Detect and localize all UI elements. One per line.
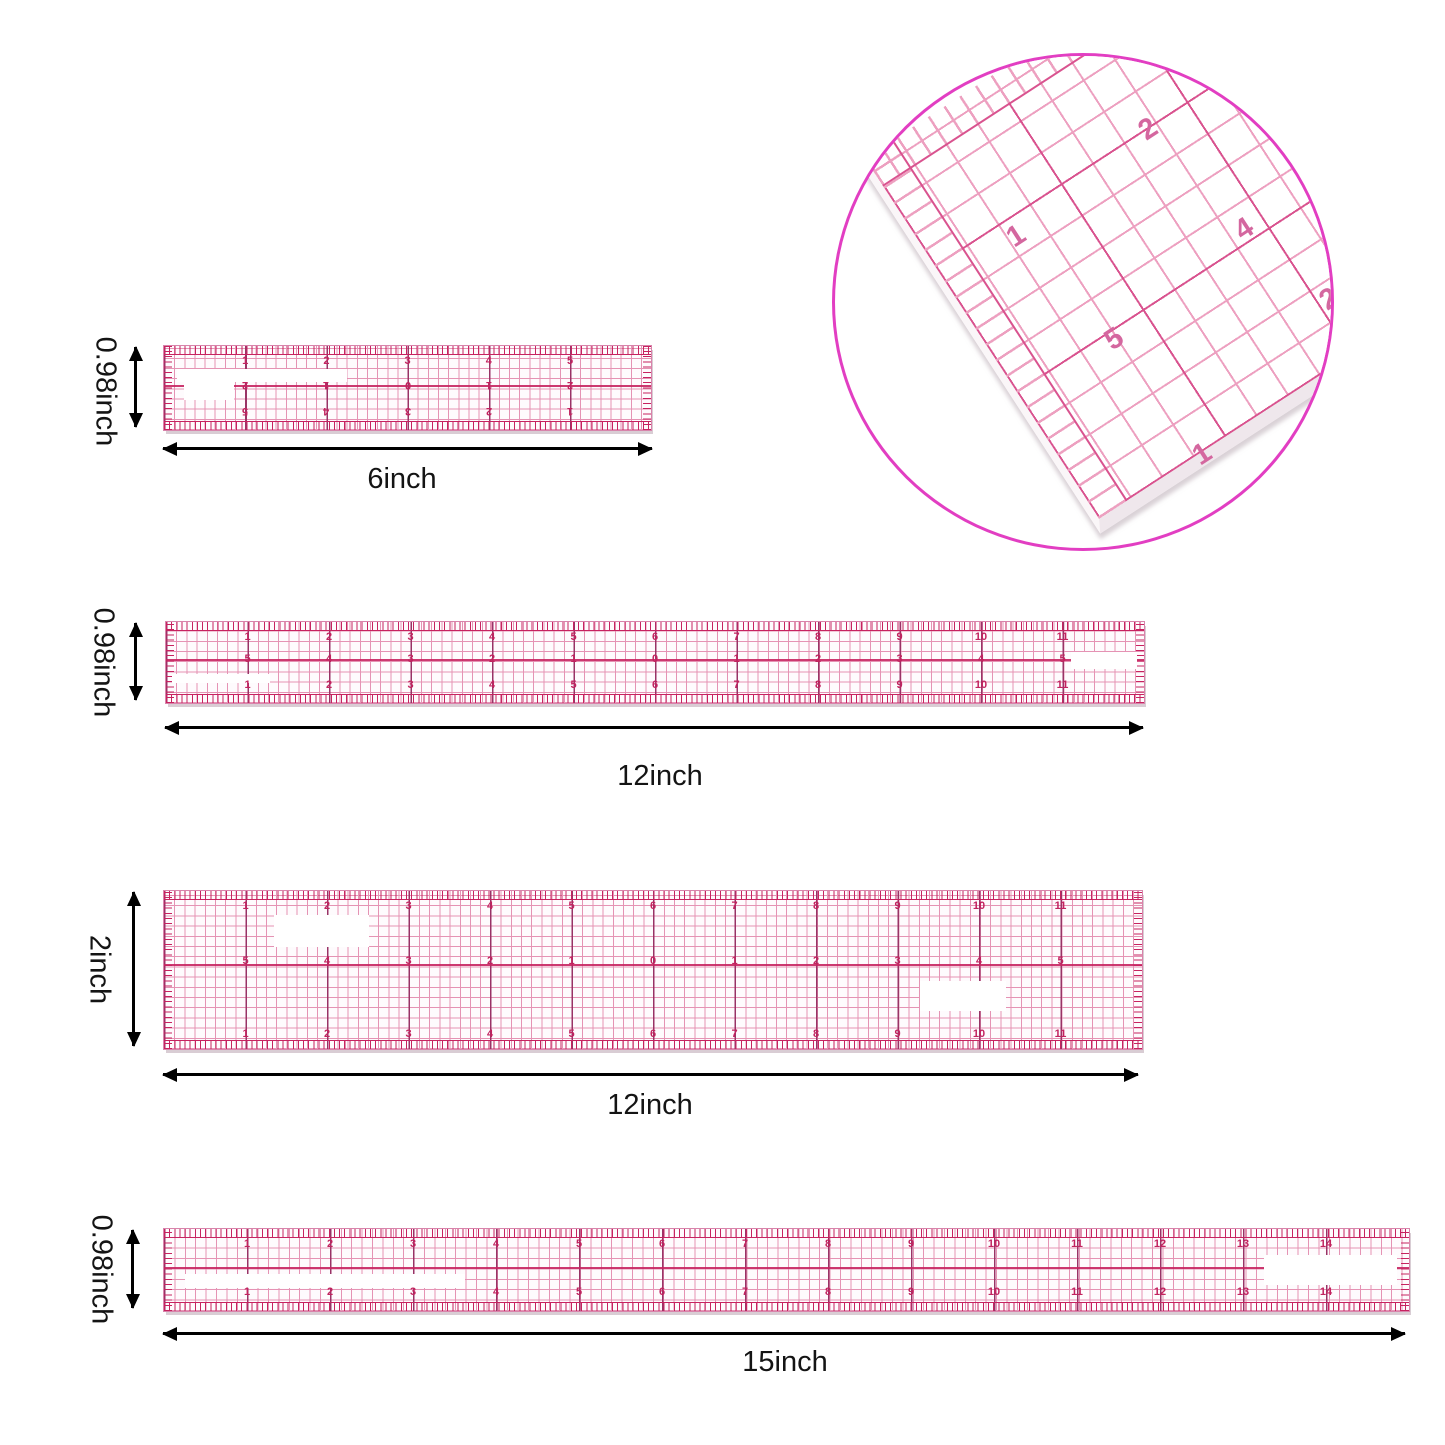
ruler-number: 5 [568, 900, 574, 912]
ruler-number: 14 [1320, 1238, 1332, 1250]
ruler-number: 3 [405, 900, 411, 912]
ruler-number: 10 [975, 679, 987, 691]
ruler-number: 8 [815, 631, 821, 643]
ruler-number: 1 [242, 900, 248, 912]
ruler-number: 8 [813, 900, 819, 912]
ruler-number: 9 [908, 1238, 914, 1250]
ruler-tick-strip-bottom [164, 1302, 1409, 1311]
ruler-number: 4 [487, 900, 493, 912]
ruler-number: 3 [407, 679, 413, 691]
ruler-number: 3 [405, 405, 411, 417]
width-label: 12inch [580, 760, 740, 793]
ruler-number: 11 [1055, 900, 1067, 912]
ruler-number: 11 [1057, 631, 1069, 643]
ruler-number: 1 [244, 679, 250, 691]
ruler-number: 4 [324, 955, 330, 967]
ruler-tick-strip-right [643, 346, 651, 430]
height-arrow [132, 892, 135, 1046]
ruler-number: 13 [1237, 1238, 1249, 1250]
ruler-15inch: 12345678910111213141234567891011121314 [163, 1228, 1410, 1312]
ruler-number: 5 [576, 1286, 582, 1298]
ruler-number: 7 [733, 631, 739, 643]
ruler-number: 0 [652, 653, 658, 665]
ruler-number: 3 [410, 1238, 416, 1250]
ruler-number: 10 [988, 1238, 1000, 1250]
ruler-number: 5 [244, 653, 250, 665]
ruler-tick-strip-right [1134, 891, 1142, 1049]
ruler-number: 2 [486, 405, 492, 417]
width-label: 6inch [322, 463, 482, 496]
ruler-tick-strip-top [166, 622, 1144, 631]
ruler-number: 0 [405, 379, 411, 391]
ruler-number: 5 [567, 355, 573, 367]
width-arrow [163, 1073, 1138, 1076]
ruler-number: 11 [1071, 1238, 1083, 1250]
ruler-number: 4 [487, 1028, 493, 1040]
ruler-tick-strip-bottom [164, 421, 651, 430]
ruler-number: 1 [567, 405, 573, 417]
ruler-number: 2 [327, 1286, 333, 1298]
ruler-number: 4 [489, 679, 495, 691]
width-arrow [163, 447, 652, 450]
ruler-number: 7 [742, 1238, 748, 1250]
ruler-tick-strip-bottom [164, 1040, 1142, 1049]
ruler-number: 1 [731, 955, 737, 967]
ruler-number: 8 [825, 1286, 831, 1298]
ruler-number: 2 [326, 679, 332, 691]
ruler-number: 1 [244, 1238, 250, 1250]
ruler-number: 4 [493, 1238, 499, 1250]
ruler-number: 9 [894, 900, 900, 912]
ruler-number: 4 [486, 355, 492, 367]
height-label: 2inch [83, 905, 116, 1035]
ruler-6inch: 123452101254321 [163, 345, 652, 431]
ruler-number: 9 [896, 679, 902, 691]
ruler-number: 5 [1057, 955, 1063, 967]
ruler-number: 11 [1071, 1286, 1083, 1298]
ruler-number: 7 [742, 1286, 748, 1298]
ruler-number: 4 [978, 653, 984, 665]
ruler-number: 4 [323, 405, 329, 417]
ruler-slot [185, 1274, 465, 1288]
height-arrow [131, 1230, 134, 1308]
ruler-number: 9 [894, 1028, 900, 1040]
ruler-number: 8 [813, 1028, 819, 1040]
ruler-slot [1264, 1255, 1397, 1285]
ruler-number: 7 [733, 679, 739, 691]
ruler-slot [920, 981, 1006, 1011]
height-arrow [134, 347, 137, 427]
ruler-number: 3 [405, 355, 411, 367]
ruler-number: 2 [242, 379, 248, 391]
ruler-number: 1 [733, 653, 739, 665]
ruler-slot [274, 915, 369, 947]
ruler-number: 1 [323, 379, 329, 391]
width-arrow [163, 1332, 1405, 1335]
ruler-midline [164, 1267, 1409, 1269]
ruler-number: 11 [1057, 679, 1069, 691]
ruler-tick-strip-top [164, 891, 1142, 900]
ruler-slot [1071, 652, 1137, 669]
ruler-number: 6 [659, 1238, 665, 1250]
ruler-number: 2 [324, 1028, 330, 1040]
ruler-number: 4 [493, 1286, 499, 1298]
ruler-12inch-narrow: 1234567891011543210123451234567891011 [165, 621, 1145, 704]
ruler-number: 4 [326, 653, 332, 665]
ruler-number: 12 [1154, 1238, 1166, 1250]
height-label: 0.98inch [85, 1205, 118, 1335]
ruler-number: 6 [652, 679, 658, 691]
ruler-number: 10 [975, 631, 987, 643]
ruler-number: 2 [487, 955, 493, 967]
ruler-number: 12 [1154, 1286, 1166, 1298]
ruler-number: 1 [244, 1286, 250, 1298]
ruler-number: 10 [973, 1028, 985, 1040]
ruler-number: 8 [825, 1238, 831, 1250]
ruler-number: 5 [576, 1238, 582, 1250]
ruler-number: 2 [489, 653, 495, 665]
ruler-number: 5 [568, 1028, 574, 1040]
ruler-number: 7 [731, 900, 737, 912]
width-label: 15inch [705, 1346, 865, 1379]
ruler-number: 10 [973, 900, 985, 912]
ruler-number: 3 [407, 631, 413, 643]
product-image-canvas: 123452101254321 0.98inch 6inch 123456789… [0, 0, 1445, 1445]
ruler-number: 2 [567, 379, 573, 391]
ruler-tick-strip-left [166, 622, 174, 703]
inset-tick-strip-top [865, 53, 1334, 187]
ruler-number: 6 [650, 1028, 656, 1040]
ruler-number: 3 [405, 1028, 411, 1040]
ruler-number: 3 [405, 955, 411, 967]
ruler-tick-strip-bottom [166, 694, 1144, 703]
width-label: 12inch [570, 1089, 730, 1122]
ruler-number: 13 [1237, 1286, 1249, 1298]
ruler-number: 3 [407, 653, 413, 665]
ruler-number: 1 [244, 631, 250, 643]
ruler-number: 0 [650, 955, 656, 967]
ruler-number: 2 [815, 653, 821, 665]
ruler-number: 2 [326, 631, 332, 643]
ruler-number: 6 [659, 1286, 665, 1298]
ruler-number: 3 [894, 955, 900, 967]
ruler-number: 5 [570, 631, 576, 643]
height-arrow [134, 623, 137, 700]
ruler-tick-strip-top [164, 1229, 1409, 1238]
ruler-number: 3 [896, 653, 902, 665]
ruler-number: 6 [652, 631, 658, 643]
inset-tick-strip-left [865, 140, 1128, 519]
ruler-number: 5 [570, 679, 576, 691]
ruler-number: 1 [242, 355, 248, 367]
ruler-number: 9 [896, 631, 902, 643]
ruler-12inch-wide: 1234567891011543210123451234567891011 [163, 890, 1143, 1050]
height-label: 0.98inch [87, 598, 120, 728]
ruler-number: 10 [988, 1286, 1000, 1298]
ruler-number: 2 [327, 1238, 333, 1250]
ruler-tick-strip-right [1136, 622, 1144, 703]
ruler-number: 4 [489, 631, 495, 643]
ruler-number: 1 [570, 653, 576, 665]
ruler-number: 8 [815, 679, 821, 691]
ruler-number: 5 [242, 955, 248, 967]
ruler-tick-strip-left [164, 1229, 172, 1311]
ruler-number: 6 [650, 900, 656, 912]
ruler-tick-strip-top [164, 346, 651, 355]
ruler-number: 1 [486, 379, 492, 391]
ruler-slot [184, 379, 234, 400]
ruler-number: 5 [1059, 653, 1065, 665]
ruler-number: 11 [1055, 1028, 1067, 1040]
ruler-number: 2 [813, 955, 819, 967]
ruler-number: 1 [568, 955, 574, 967]
ruler-tick-strip-left [164, 891, 172, 1049]
magnifier-circle: 214512 [832, 53, 1334, 551]
ruler-number: 7 [731, 1028, 737, 1040]
ruler-number: 1 [242, 1028, 248, 1040]
ruler-number: 2 [323, 355, 329, 367]
ruler-number: 2 [324, 900, 330, 912]
ruler-number: 9 [908, 1286, 914, 1298]
magnified-ruler-corner [859, 53, 1334, 534]
ruler-number: 14 [1320, 1286, 1332, 1298]
width-arrow [165, 726, 1143, 729]
ruler-tick-strip-right [1401, 1229, 1409, 1311]
ruler-number: 4 [976, 955, 982, 967]
ruler-number: 5 [242, 405, 248, 417]
ruler-tick-strip-left [164, 346, 172, 430]
ruler-slot [172, 674, 270, 683]
ruler-number: 3 [410, 1286, 416, 1298]
height-label: 0.98inch [89, 327, 122, 457]
